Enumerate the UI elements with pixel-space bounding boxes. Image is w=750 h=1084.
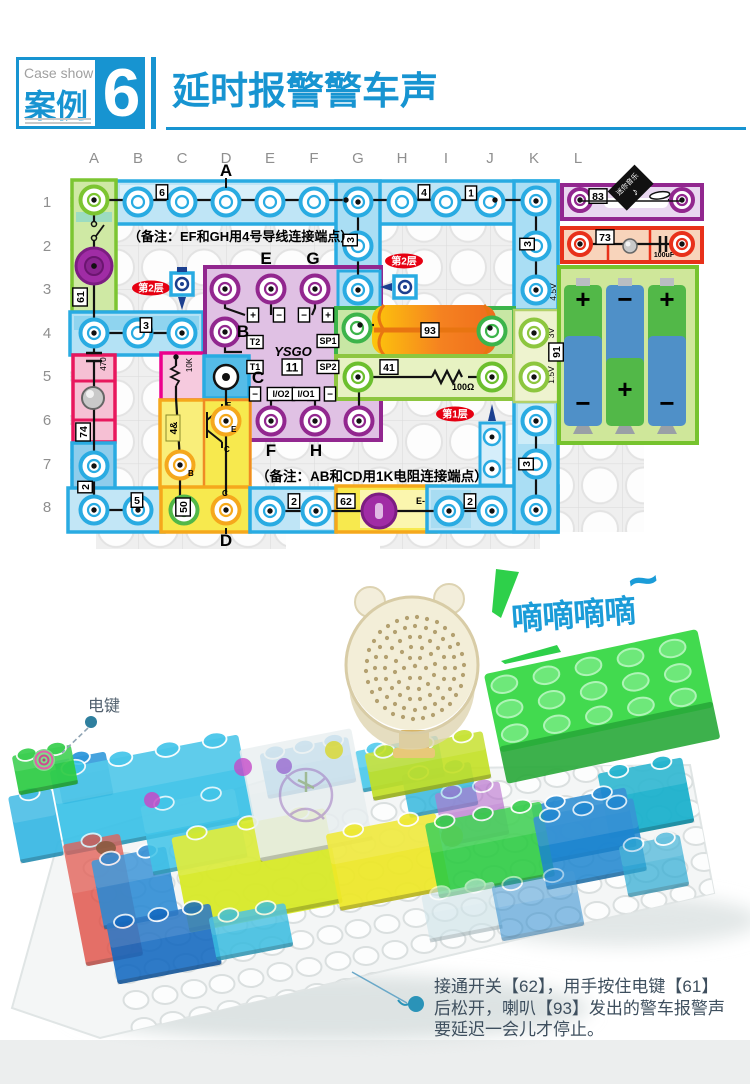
svg-text:I/O1: I/O1 [297,389,314,399]
svg-text:−: − [575,388,590,418]
svg-text:L: L [574,150,582,167]
svg-text:YSGO: YSGO [274,344,312,359]
svg-text:2: 2 [467,496,473,508]
svg-text:SP2: SP2 [319,362,336,372]
svg-text:−: − [252,390,258,401]
svg-text:8: 8 [43,499,51,516]
svg-text:+: + [659,284,674,314]
svg-text:6: 6 [43,412,51,429]
svg-text:E-: E- [416,496,425,506]
svg-text:A: A [89,150,99,167]
svg-text:5: 5 [134,495,140,507]
svg-text:I/O2: I/O2 [272,389,289,399]
svg-text:7: 7 [43,456,51,473]
svg-text:100Ω: 100Ω [452,382,474,392]
svg-text:+: + [617,374,632,404]
svg-text:74: 74 [78,426,90,438]
svg-text:91: 91 [551,346,563,358]
svg-text:+: + [575,284,590,314]
svg-text:J: J [486,150,494,167]
svg-text:I: I [444,150,448,167]
svg-text:（备注：AB和CD用1K电阻连接端点）: （备注：AB和CD用1K电阻连接端点） [256,468,488,484]
svg-text:−: − [659,388,674,418]
svg-text:−: − [276,311,282,322]
svg-text:第1层: 第1层 [442,407,468,420]
svg-text:10K: 10K [185,357,194,372]
svg-text:100uF: 100uF [654,252,675,259]
svg-text:SP1: SP1 [319,336,336,346]
svg-text:C: C [224,445,230,454]
svg-text:+: + [250,311,256,322]
svg-text:1: 1 [43,194,51,211]
svg-text:+: + [325,311,331,322]
svg-text:11: 11 [286,360,299,374]
svg-text:50: 50 [178,501,190,513]
svg-text:−: − [327,390,333,401]
svg-text:4: 4 [43,325,51,342]
svg-text:62: 62 [340,496,352,508]
svg-text:T2: T2 [250,337,261,347]
svg-text:F: F [266,441,276,460]
svg-text:41: 41 [383,362,395,374]
svg-text:470: 470 [99,357,108,371]
svg-text:2: 2 [291,496,297,508]
svg-text:2: 2 [43,238,51,255]
svg-text:（备注：EF和GH用4号导线连接端点）: （备注：EF和GH用4号导线连接端点） [128,229,353,244]
svg-text:G: G [306,249,319,268]
svg-text:H: H [397,150,408,167]
svg-text:B: B [237,322,249,341]
svg-text:2: 2 [80,484,92,490]
svg-text:C: C [222,489,228,498]
svg-text:K: K [529,150,539,167]
svg-text:C: C [177,150,188,167]
svg-text:5: 5 [43,368,51,385]
svg-text:F: F [309,150,318,167]
svg-text:3: 3 [521,461,533,467]
svg-text:−: − [617,284,632,314]
svg-text:第2层: 第2层 [391,254,417,267]
svg-text:C: C [252,368,264,387]
svg-text:3: 3 [43,281,51,298]
svg-text:E: E [231,425,237,434]
svg-text:73: 73 [599,232,611,244]
svg-text:−: − [301,311,307,322]
svg-text:93: 93 [424,325,436,337]
svg-text:E: E [260,249,271,268]
svg-text:3: 3 [143,320,149,332]
svg-text:B: B [188,469,194,478]
svg-text:H: H [310,441,322,460]
svg-text:E: E [265,150,275,167]
svg-text:3: 3 [522,241,534,247]
svg-text:A: A [220,161,232,180]
svg-text:4&: 4& [169,422,180,435]
svg-text:第2层: 第2层 [138,281,164,294]
svg-text:4: 4 [421,187,427,199]
svg-text:6: 6 [159,187,165,199]
svg-text:1: 1 [468,189,474,200]
svg-text:B: B [133,150,143,167]
svg-text:G: G [352,150,364,167]
svg-text:61: 61 [75,291,87,303]
